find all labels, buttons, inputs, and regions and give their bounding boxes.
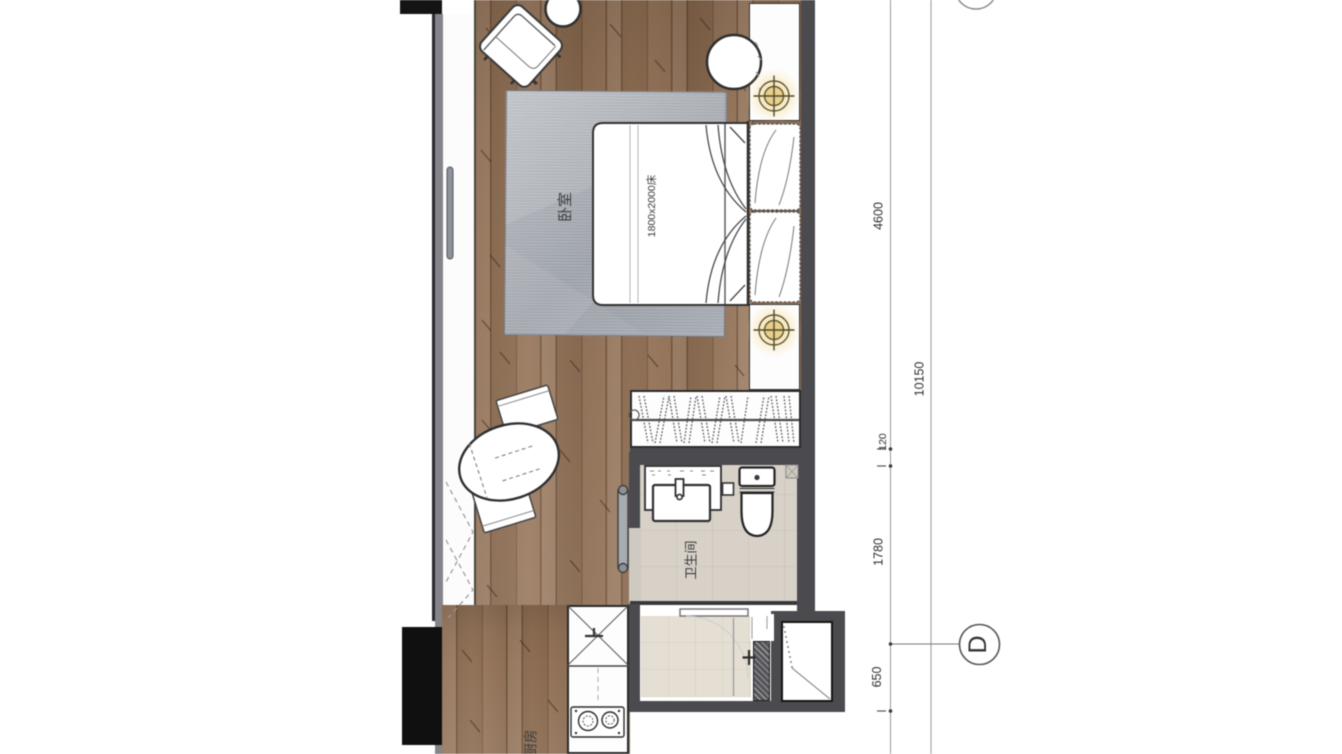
svg-text:1800x2000床: 1800x2000床 bbox=[645, 174, 658, 237]
svg-text:D: D bbox=[964, 635, 992, 653]
svg-text:10150: 10150 bbox=[912, 362, 926, 397]
svg-text:120: 120 bbox=[877, 433, 889, 451]
svg-text:4600: 4600 bbox=[871, 202, 885, 230]
svg-text:卫生间: 卫生间 bbox=[683, 540, 698, 579]
svg-text:1780: 1780 bbox=[871, 538, 885, 566]
svg-text:卧室: 卧室 bbox=[557, 192, 574, 222]
svg-text:厨房: 厨房 bbox=[524, 730, 539, 754]
svg-text:650: 650 bbox=[870, 667, 884, 688]
